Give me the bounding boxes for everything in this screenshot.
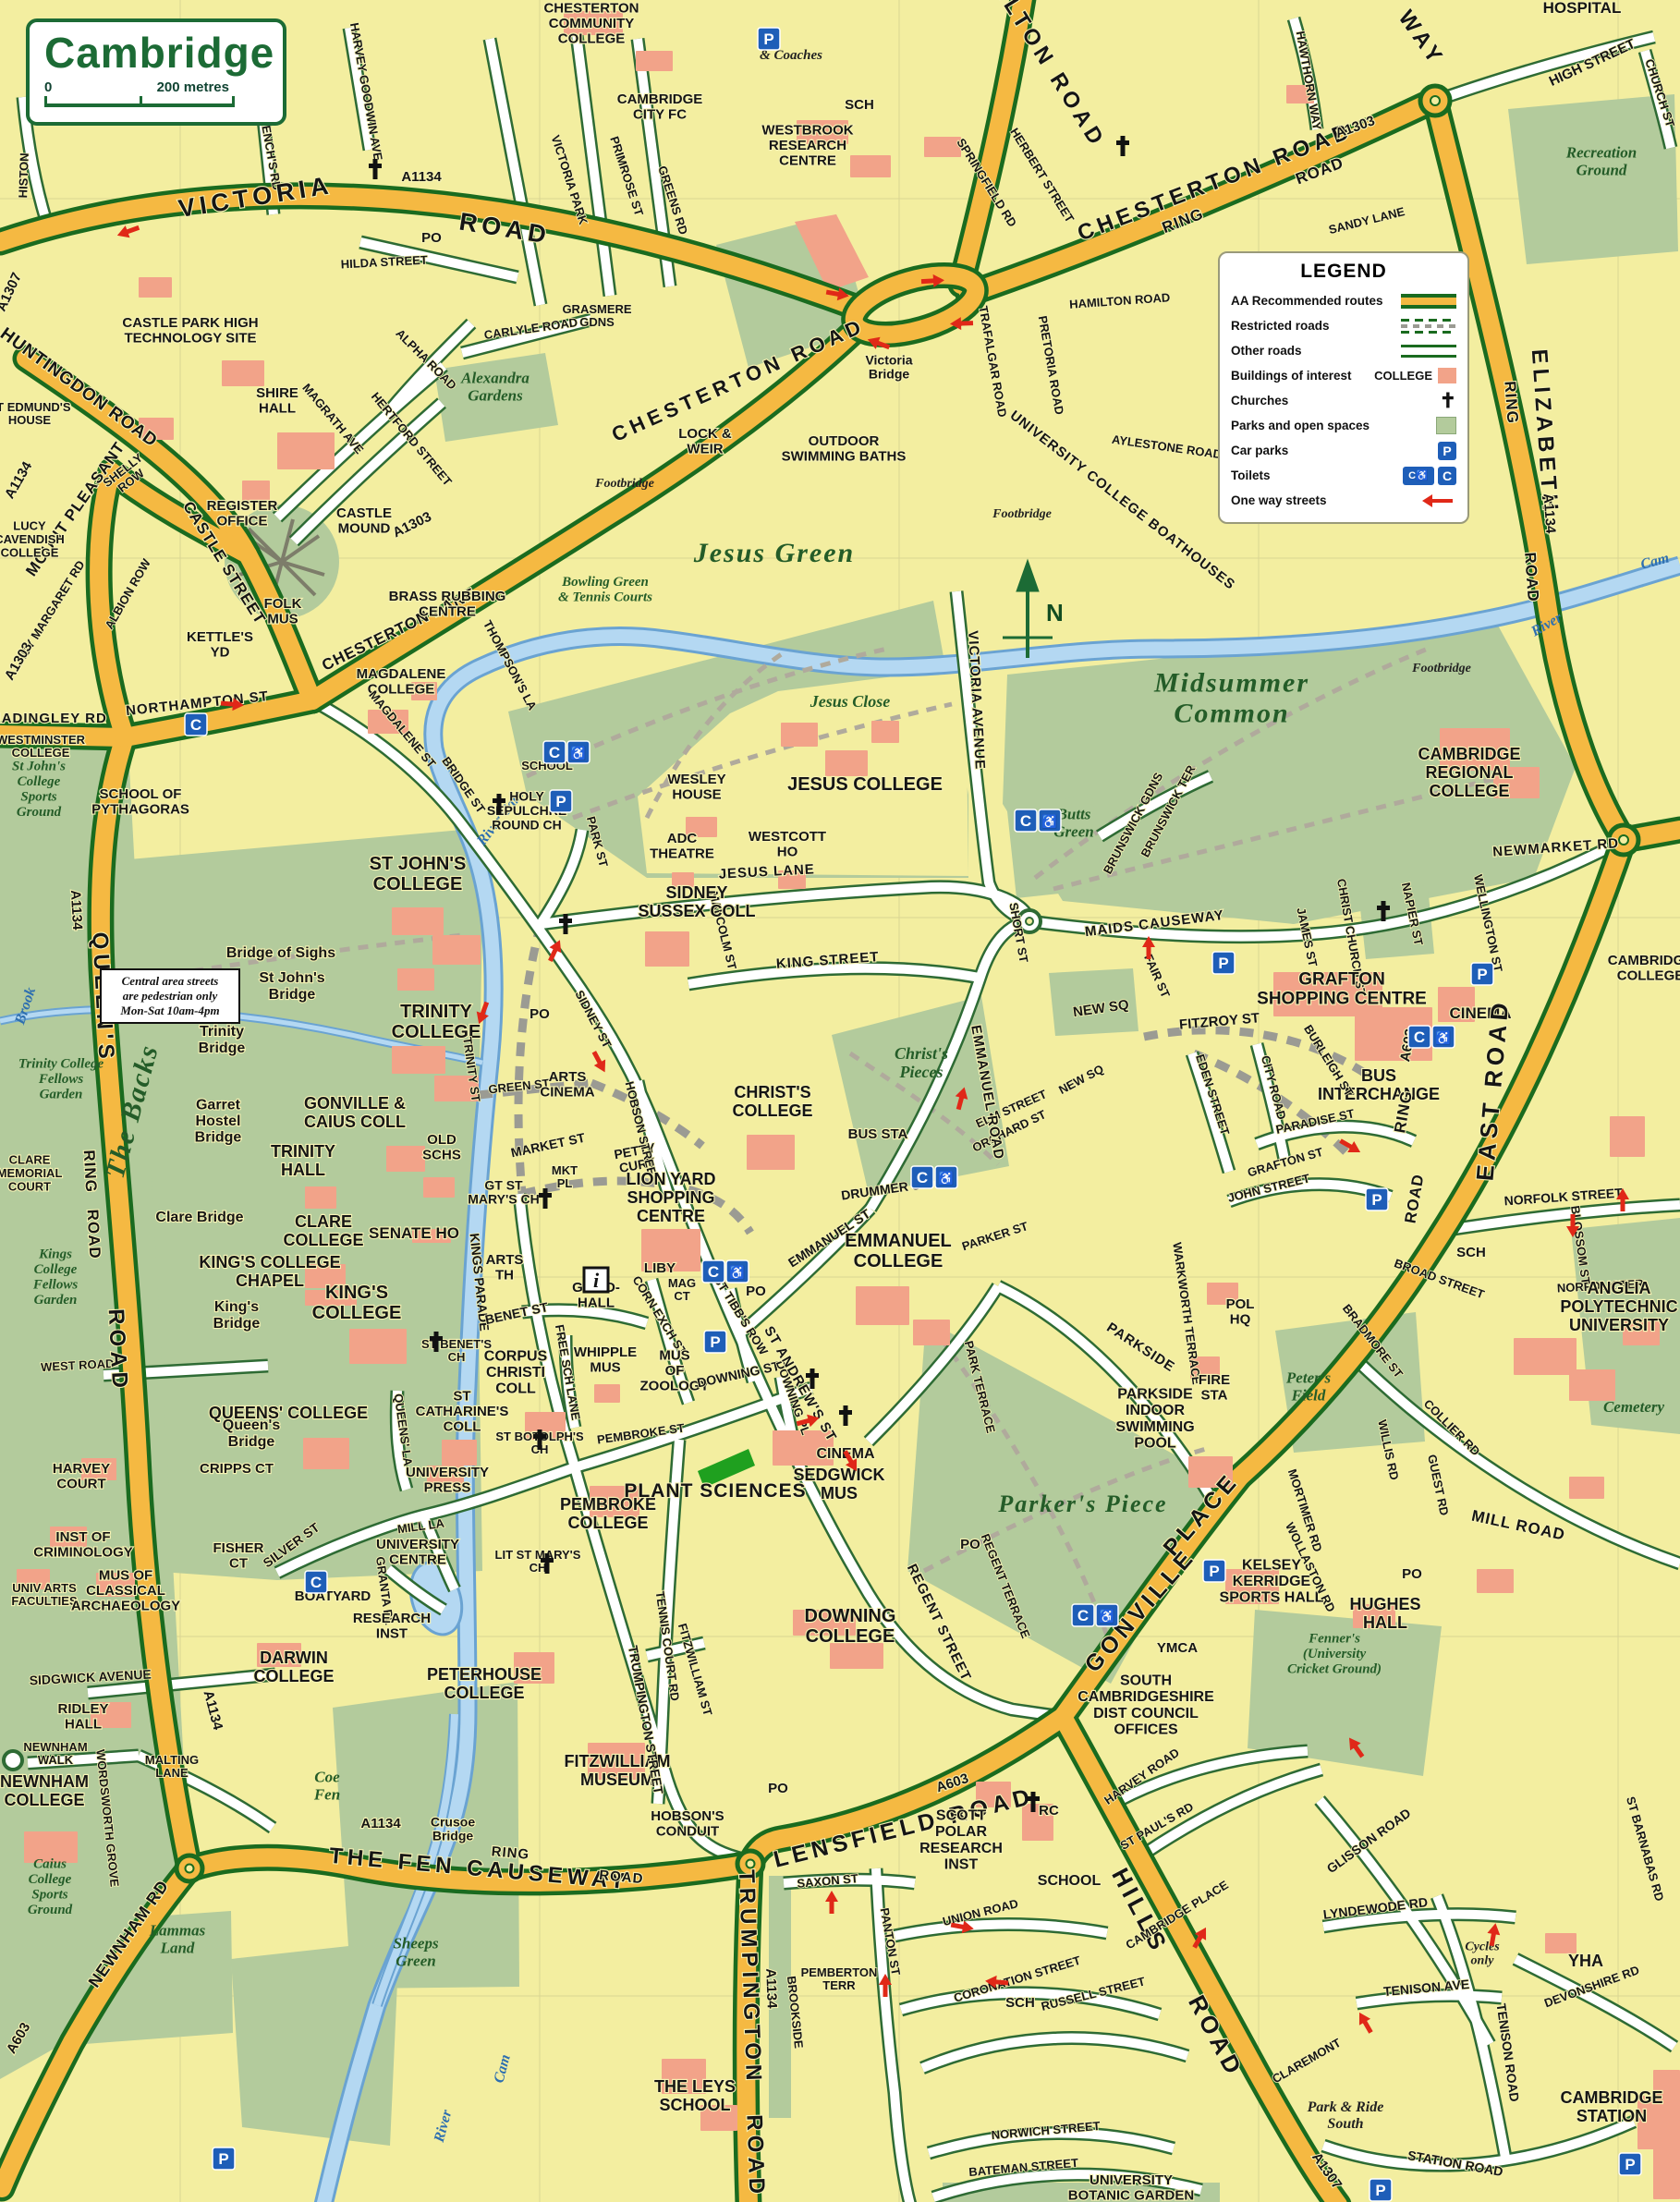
legend-swatch-park: [1436, 417, 1456, 434]
building-of-interest: [747, 1135, 795, 1170]
map-label: Jesus Close: [810, 692, 891, 711]
building-of-interest: [871, 721, 899, 743]
map-label: ST JOHN'SCOLLEGE: [370, 854, 467, 894]
map-label: SHIREHALL: [256, 385, 298, 417]
svg-text:P: P: [1371, 1191, 1382, 1209]
svg-text:♿: ♿: [938, 1171, 954, 1186]
map-label: OLDSCHS: [422, 1132, 461, 1163]
map-label: CAMBRIDGECOLLEGE: [1608, 953, 1680, 984]
building-of-interest: [305, 1186, 336, 1209]
svg-text:P: P: [1218, 955, 1228, 972]
building-of-interest: [1569, 1369, 1615, 1401]
map-label: Clare Bridge: [155, 1210, 243, 1225]
car-park-icon: P: [1438, 442, 1456, 460]
map-label: WESLEYHOUSE: [667, 772, 725, 803]
legend-college-text: COLLEGE: [1374, 369, 1432, 383]
map-label: RIDLEYHALL: [57, 1701, 108, 1733]
legend-item: AA Recommended routes: [1231, 288, 1456, 313]
legend-swatch-route: [1401, 294, 1456, 309]
building-of-interest: [850, 155, 891, 177]
map-label: LION YARDSHOPPINGCENTRE: [626, 1170, 715, 1225]
map-label: CHRIST'SCOLLEGE: [732, 1083, 812, 1120]
building-of-interest: [594, 1384, 620, 1403]
map-label: YHA: [1568, 1952, 1603, 1970]
map-label: Footbridge: [1411, 662, 1471, 675]
map-label: CRIPPS CT: [200, 1461, 274, 1477]
map-label: RING: [80, 1150, 100, 1193]
building-of-interest: [913, 1320, 950, 1345]
car-park-icon: P: [550, 790, 572, 812]
map-label: LIBY: [644, 1260, 676, 1276]
map-label: UNIV ARTSFACULTIES: [11, 1581, 78, 1608]
svg-text:P: P: [1209, 1563, 1219, 1580]
map-label: Footbridge: [992, 507, 1052, 521]
pedestrian-note: Central area streetsare pedestrian onlyM…: [100, 968, 240, 1024]
svg-text:P: P: [555, 793, 566, 810]
map-label: GONVILLE &CAIUS COLL: [304, 1094, 406, 1131]
building-of-interest: [1569, 1477, 1604, 1499]
map-label: PLANT SCIENCES: [624, 1480, 806, 1502]
map-label: CHESTERTONCOMMUNITYCOLLEGE: [543, 1, 639, 47]
svg-text:♿: ♿: [729, 1265, 745, 1281]
legend-item: Car parksP: [1231, 438, 1456, 463]
car-park-icon: P: [1366, 1188, 1388, 1210]
map-label: PO: [1402, 1566, 1422, 1582]
note-line: Central area streets: [103, 974, 237, 989]
map-label: A1134: [401, 169, 442, 185]
building-of-interest: [781, 723, 818, 747]
svg-text:N: N: [1046, 599, 1064, 627]
map-label: JESUS COLLEGE: [787, 774, 943, 795]
map-label: PO: [768, 1781, 788, 1796]
building-of-interest: [432, 935, 481, 965]
toilets-disabled-icon: C♿: [1403, 467, 1434, 485]
map-label: HOBSON'SCONDUIT: [651, 1808, 724, 1840]
building-of-interest: [277, 432, 335, 469]
building-of-interest: [392, 1046, 445, 1074]
legend-item: One way streets: [1231, 488, 1456, 513]
map-label: FIRESTA: [1199, 1372, 1230, 1404]
legend-item: Parks and open spaces: [1231, 413, 1456, 438]
svg-text:C: C: [549, 744, 560, 761]
map-label: RING: [1501, 381, 1521, 425]
svg-text:P: P: [1375, 2182, 1385, 2199]
legend-item-label: One way streets: [1231, 493, 1427, 507]
scale-start: 0: [44, 79, 52, 95]
building-of-interest: [645, 931, 689, 967]
map-label: MAGDALENECOLLEGE: [357, 666, 446, 698]
map-label: KingsCollegeFellowsGarden: [32, 1247, 79, 1308]
svg-text:C: C: [1077, 1607, 1089, 1624]
svg-text:P: P: [763, 30, 773, 48]
building-of-interest: [222, 360, 264, 386]
legend-swatch-other: [1401, 345, 1456, 358]
car-park-icon: P: [704, 1331, 726, 1353]
building-of-interest: [636, 51, 673, 71]
map-label: A1134: [1540, 493, 1558, 534]
map-label: ROAD: [103, 1308, 133, 1393]
legend-item-label: Parks and open spaces: [1231, 419, 1436, 432]
svg-text:C: C: [917, 1169, 928, 1186]
legend-item-label: Toilets: [1231, 468, 1399, 482]
legend-item: ToiletsC♿C: [1231, 463, 1456, 488]
legend-box: LEGEND AA Recommended routesRestricted r…: [1218, 251, 1469, 524]
building-of-interest: [1610, 1116, 1645, 1157]
map-label: CoeFen: [313, 1769, 340, 1804]
building-of-interest: [1545, 1933, 1577, 1953]
map-label: A1134: [67, 890, 85, 931]
map-label: SCH: [845, 97, 874, 113]
map-label: EMMANUELCOLLEGE: [845, 1231, 952, 1271]
legend-item-label: Other roads: [1231, 344, 1401, 358]
note-line: are pedestrian only: [103, 989, 237, 1004]
car-park-icon: P: [1203, 1560, 1225, 1582]
legend-item-label: Car parks: [1231, 444, 1434, 457]
svg-text:♿: ♿: [1099, 1609, 1114, 1624]
map-label: CLARECOLLEGE: [283, 1212, 363, 1249]
map-label: RC: [1039, 1803, 1059, 1819]
map-label: St John'sBridge: [259, 970, 324, 1003]
map-label: RING: [491, 1843, 530, 1863]
svg-text:P: P: [1625, 2156, 1635, 2173]
map-label: Jesus Green: [693, 538, 856, 568]
map-label: SCH: [1456, 1245, 1486, 1260]
map-label: Bowling Green& Tennis Courts: [558, 575, 652, 605]
building-of-interest: [303, 1438, 349, 1469]
map-label: DARWINCOLLEGE: [253, 1648, 334, 1685]
church-icon: ✝: [1440, 393, 1456, 408]
scale-bar: [44, 96, 235, 107]
map-label: A1134: [360, 1816, 401, 1831]
map-label: King'sBridge: [213, 1299, 261, 1332]
car-park-icon: P: [1370, 2179, 1392, 2201]
svg-text:♿: ♿: [1435, 1030, 1451, 1046]
map-label: REGISTEROFFICE: [207, 498, 278, 529]
map-label: PO: [530, 1006, 550, 1022]
map-label: PO: [746, 1283, 766, 1299]
legend-swatch-restricted: [1401, 319, 1456, 334]
legend-item-label: AA Recommended routes: [1231, 294, 1401, 308]
map-label: CASTLEMOUND: [336, 505, 392, 537]
map-label: THE LEYSSCHOOL: [654, 2077, 736, 2114]
svg-text:C: C: [708, 1263, 719, 1281]
car-park-icon: P: [1619, 2153, 1641, 2175]
toilets-icon: C: [305, 1571, 327, 1593]
map-label: HISTON: [16, 152, 31, 198]
toilets-icon: C: [185, 713, 207, 736]
car-park-icon: P: [213, 2147, 235, 2170]
map-label: TrinityBridge: [199, 1024, 246, 1056]
map-title: Cambridge: [44, 28, 268, 78]
legend-item-label: Churches: [1231, 394, 1440, 408]
map-label: SCH: [1005, 1995, 1035, 2011]
svg-text:C: C: [1020, 812, 1031, 830]
legend-item: Restricted roads: [1231, 313, 1456, 338]
svg-text:i: i: [593, 1269, 600, 1292]
building-of-interest: [349, 1329, 407, 1364]
toilets-icon: C: [1438, 467, 1456, 485]
building-of-interest: [397, 968, 434, 991]
legend-swatch-building: [1438, 368, 1456, 383]
map-label: SCHOOL OFPYTHAGORAS: [91, 786, 189, 818]
map-label: Queen'sBridge: [223, 1417, 281, 1450]
map-label: A1134: [762, 1968, 780, 2010]
map-label: TRINITYCOLLEGE: [392, 1002, 481, 1042]
legend-title: LEGEND: [1231, 261, 1456, 283]
building-of-interest: [139, 277, 172, 298]
legend-item: Buildings of interestCOLLEGE: [1231, 363, 1456, 388]
svg-text:P: P: [1477, 966, 1487, 983]
car-park-icon: P: [1471, 963, 1493, 985]
map-label: ROAD: [84, 1209, 104, 1259]
map-label: KING'SCOLLEGE: [312, 1283, 402, 1323]
map-label: ROAD: [1521, 552, 1542, 602]
legend-item: Other roads: [1231, 338, 1456, 363]
tourist-info-icon: i: [584, 1268, 608, 1292]
building-of-interest: [830, 1643, 883, 1669]
map-label: YMCA: [1157, 1640, 1198, 1656]
scale-end: 200 metres: [157, 79, 229, 95]
building-of-interest: [386, 1146, 425, 1172]
building-of-interest: [856, 1286, 909, 1325]
svg-text:♿: ♿: [1041, 814, 1057, 830]
map-label: HARVEYCOURT: [53, 1461, 110, 1492]
map-label: PO: [421, 230, 442, 246]
legend-item-label: Restricted roads: [1231, 319, 1401, 333]
car-park-icon: P: [1212, 952, 1235, 974]
car-park-icon: P: [758, 28, 780, 50]
svg-text:P: P: [218, 2150, 228, 2168]
note-line: Mon-Sat 10am-4pm: [103, 1004, 237, 1018]
map-label: SheepsGreen: [393, 1935, 439, 1970]
svg-text:C: C: [190, 716, 201, 734]
map-label: Footbridge: [594, 477, 654, 491]
map-label: CASTLE PARK HIGHTECHNOLOGY SITE: [122, 315, 258, 347]
map-label: GarretHostelBridge: [195, 1097, 242, 1145]
map-label: SCHOOL: [1038, 1873, 1102, 1889]
map-label: AlexandraGardens: [460, 370, 530, 405]
building-of-interest: [825, 750, 868, 776]
svg-text:C: C: [310, 1574, 322, 1591]
building-of-interest: [924, 137, 961, 157]
map-label: CAMBRIDGEREGIONALCOLLEGE: [1418, 745, 1521, 800]
map-label: RecreationGround: [1565, 144, 1637, 179]
map-label: Cemetery: [1603, 1398, 1665, 1416]
one-way-arrow-icon: [1427, 499, 1453, 503]
legend-item-label: Buildings of interest: [1231, 369, 1374, 383]
map-label: POLHQ: [1226, 1296, 1255, 1328]
map-label: DOWNINGCOLLEGE: [805, 1606, 896, 1647]
building-of-interest: [1514, 1338, 1577, 1375]
map-label: HOSPITAL: [1543, 0, 1622, 17]
map-label: VictoriaBridge: [865, 352, 912, 381]
map-label: Peter'sField: [1285, 1369, 1332, 1405]
map-label: MidsummerCommon: [1153, 668, 1309, 729]
map-label: NEWNHAMCOLLEGE: [0, 1772, 89, 1809]
map-label: Christ'sPieces: [895, 1044, 948, 1081]
legend-item: Churches✝: [1231, 388, 1456, 413]
building-of-interest: [392, 907, 444, 935]
svg-text:♿: ♿: [570, 746, 586, 761]
svg-text:C: C: [1414, 1028, 1425, 1046]
map-label: Parker's Piece: [997, 1490, 1167, 1517]
map-label: BUS STA: [848, 1126, 908, 1142]
svg-text:P: P: [710, 1333, 720, 1351]
building-of-interest: [1477, 1569, 1514, 1593]
map-label: Bridge of Sighs: [226, 945, 335, 961]
map-label: MADINGLEY RD: [0, 711, 107, 726]
map-label: PO: [960, 1537, 980, 1552]
map-label: PETERHOUSECOLLEGE: [427, 1665, 542, 1702]
building-of-interest: [423, 1177, 455, 1198]
map-label: ROAD: [741, 2114, 769, 2199]
cambridge-map: { "title": {"name":"Cambridge","scale_st…: [0, 0, 1680, 2202]
map-label: SENATE HO: [369, 1224, 459, 1242]
map-label: CaiusCollegeSportsGround: [28, 1856, 73, 1917]
building-of-interest: [442, 1440, 477, 1466]
map-label: CrusoeBridge: [431, 1814, 475, 1843]
map-label: FOLKMUS: [264, 596, 302, 627]
map-title-box: Cambridge 0 200 metres: [26, 18, 286, 126]
